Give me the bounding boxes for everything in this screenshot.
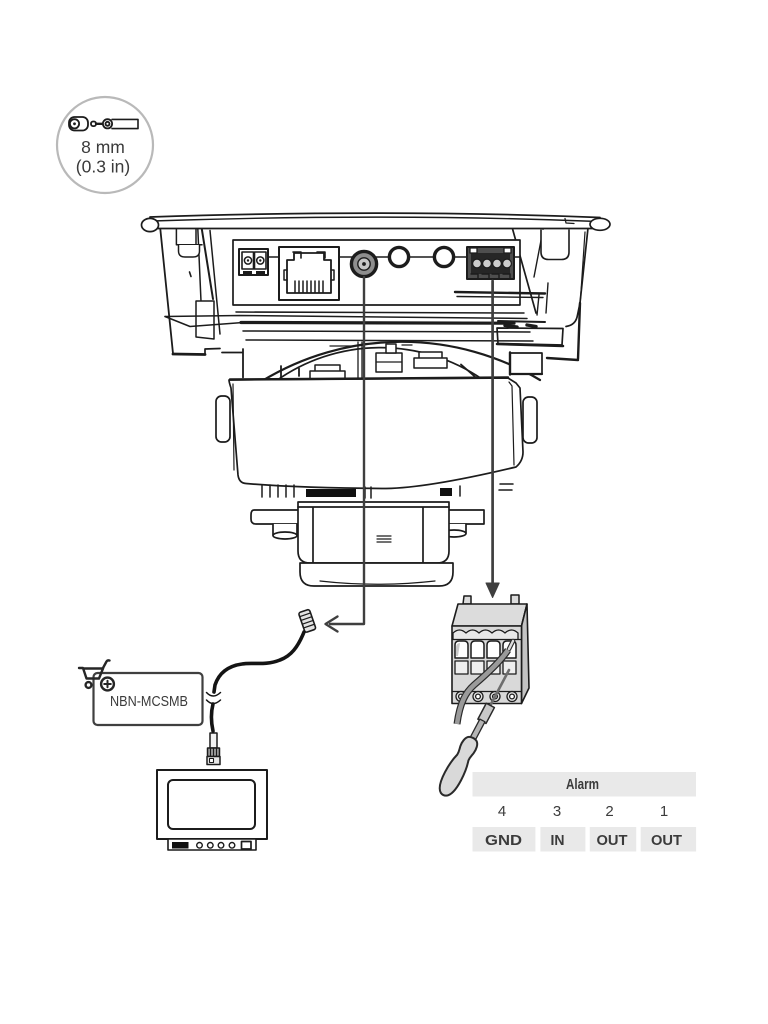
svg-text:1: 1	[660, 803, 668, 820]
svg-text:3: 3	[553, 803, 561, 820]
svg-text:Alarm: Alarm	[566, 777, 599, 793]
svg-text:4: 4	[498, 803, 506, 820]
svg-text:OUT: OUT	[597, 833, 628, 849]
svg-text:IN: IN	[551, 833, 565, 849]
svg-text:2: 2	[605, 803, 613, 820]
svg-text:(0.3 in): (0.3 in)	[76, 157, 130, 177]
svg-text:GND: GND	[485, 833, 522, 849]
svg-text:8 mm: 8 mm	[81, 137, 125, 157]
svg-text:NBN-MCSMB: NBN-MCSMB	[110, 694, 188, 710]
svg-text:OUT: OUT	[651, 833, 682, 849]
